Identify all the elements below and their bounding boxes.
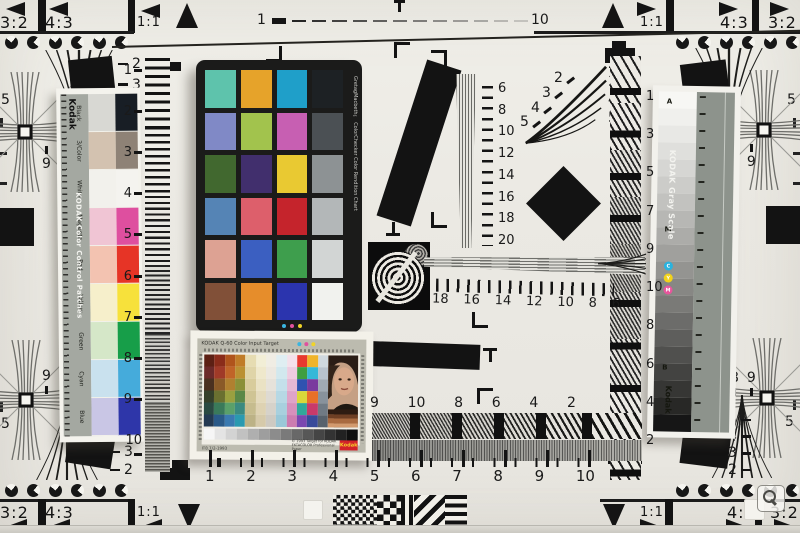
color-patch-muted bbox=[90, 246, 117, 284]
arrow-up-icon bbox=[602, 3, 624, 28]
crop-bracket bbox=[472, 312, 488, 328]
ruler-tick bbox=[546, 450, 549, 467]
wedge-scale-center-vertical: 68101214161820 bbox=[498, 82, 522, 248]
black-bar bbox=[372, 341, 481, 370]
fade-dash bbox=[494, 20, 508, 23]
it8-cell bbox=[235, 367, 245, 379]
checkerboard-fine bbox=[333, 495, 377, 525]
it8-cell bbox=[245, 403, 255, 415]
scale-label: 2 bbox=[122, 105, 142, 119]
white-patch bbox=[303, 500, 323, 520]
patch-label: Black bbox=[69, 94, 87, 132]
portrait-photo bbox=[328, 355, 359, 427]
scale-label: 2 bbox=[246, 467, 256, 485]
fade-dash bbox=[453, 20, 467, 23]
scale-label: 18 bbox=[498, 212, 522, 226]
black-mark bbox=[172, 460, 188, 480]
scale-label: 14 bbox=[494, 293, 511, 308]
ramp-step bbox=[270, 429, 281, 440]
ruler-tick bbox=[335, 450, 338, 467]
strip-title: KODAK Color Control Patches bbox=[70, 192, 88, 362]
target-header: KODAK Q-60 Color Input Target bbox=[201, 340, 279, 347]
scale-label: 10 bbox=[498, 125, 522, 139]
wedge-scale-bottom: 9108642 bbox=[370, 395, 576, 411]
resolution-wedge-left bbox=[145, 58, 170, 472]
it8-cell bbox=[307, 415, 317, 427]
target-mat: KODAK Q-60 Color Input Target bbox=[197, 338, 367, 452]
magnifier-handle bbox=[770, 499, 777, 506]
scale-label: 4 bbox=[531, 100, 540, 116]
it8-cell bbox=[307, 367, 317, 379]
it8-cell bbox=[225, 355, 235, 367]
scale-label: 6 bbox=[411, 467, 421, 485]
scale-label: 10 bbox=[576, 467, 595, 485]
it8-cell bbox=[214, 391, 224, 403]
it8-cell bbox=[224, 415, 234, 427]
colorchecker-patch bbox=[241, 113, 272, 151]
patch-label: Blue bbox=[72, 398, 90, 436]
it8-cell bbox=[297, 415, 307, 427]
ramp-step bbox=[347, 429, 358, 440]
registration-mark bbox=[93, 36, 106, 49]
it8-cell bbox=[245, 379, 255, 391]
it8-cell bbox=[276, 367, 286, 379]
it8-color-grid bbox=[204, 354, 328, 427]
scale-label: 20 bbox=[498, 234, 522, 248]
registration-mark bbox=[49, 484, 62, 497]
ruler-tick bbox=[420, 450, 423, 467]
separator-bar bbox=[752, 0, 759, 33]
fade-dash bbox=[433, 20, 447, 23]
scale-label: 9 bbox=[535, 467, 545, 485]
studio-test-chart-photo: 3:2 4:3 1:1 1:1 4:3 3:2 3:2 4:3 1:1 bbox=[0, 0, 800, 533]
scale-label: 6 bbox=[122, 270, 142, 284]
it8-cell bbox=[245, 367, 255, 379]
it8-cell bbox=[204, 366, 214, 378]
colorchecker-patch bbox=[205, 198, 236, 236]
scale-label: 6 bbox=[492, 395, 501, 411]
colorchecker-patch bbox=[312, 198, 343, 236]
it8-cell bbox=[318, 403, 328, 415]
fade-dash bbox=[292, 20, 306, 23]
scale-label: 9 bbox=[646, 243, 666, 257]
ratio-label: 1:1 bbox=[137, 15, 161, 30]
ruler-tick bbox=[251, 450, 254, 467]
tee-mark bbox=[386, 222, 400, 236]
skin-bar bbox=[328, 423, 358, 428]
color-patch-muted bbox=[89, 208, 116, 246]
colorchecker-grid bbox=[205, 70, 343, 320]
ruler-tick bbox=[462, 450, 465, 467]
resolution-wedge-bottom bbox=[372, 413, 642, 439]
it8-cell bbox=[287, 355, 297, 367]
black-edge-block bbox=[0, 208, 34, 246]
it8-cell bbox=[307, 391, 317, 403]
ratio-label: 4:3 bbox=[720, 13, 749, 32]
separator-bar bbox=[666, 0, 674, 33]
colorchecker-patch bbox=[277, 240, 308, 278]
fade-dash bbox=[312, 20, 326, 23]
colorchecker-patch bbox=[241, 283, 272, 321]
it8-cell bbox=[266, 391, 276, 403]
it8-cell bbox=[204, 390, 214, 402]
edge-line bbox=[0, 31, 134, 34]
zoom-button[interactable] bbox=[757, 485, 785, 512]
scale-start: 1 bbox=[257, 12, 266, 28]
fade-dashes bbox=[272, 18, 528, 24]
colorchecker-patch bbox=[277, 113, 308, 151]
crop-bracket bbox=[431, 212, 447, 228]
ratio-label: 1:1 bbox=[640, 505, 664, 520]
scale-label: 7 bbox=[646, 205, 666, 219]
cyan-dot-icon bbox=[297, 342, 301, 346]
registration-mark bbox=[49, 36, 62, 49]
test-pattern-blocks bbox=[333, 495, 467, 525]
it8-cell bbox=[204, 354, 214, 366]
ramp-step bbox=[237, 429, 248, 440]
colorchecker-patch bbox=[241, 198, 272, 236]
it8-cell bbox=[246, 355, 256, 367]
registration-mark bbox=[93, 484, 106, 497]
scale-label: 9 bbox=[370, 395, 379, 411]
ramp-step bbox=[215, 429, 226, 440]
it8-cell bbox=[287, 403, 297, 415]
scale-label: 3 bbox=[287, 467, 297, 485]
scale-label: 2 bbox=[728, 462, 751, 478]
colorchecker-patch bbox=[277, 198, 308, 236]
edge-line bbox=[0, 499, 134, 502]
ruler-tick bbox=[377, 450, 380, 467]
registration-mark bbox=[786, 36, 799, 49]
it8-cell bbox=[266, 403, 276, 415]
it8-cell bbox=[317, 415, 327, 427]
magenta-dot-icon bbox=[290, 324, 294, 328]
it8-cell bbox=[277, 355, 287, 367]
q60-color-input-target: KODAK Q-60 Color Input Target bbox=[190, 330, 374, 460]
vertical-bars bbox=[401, 495, 414, 525]
ramp-step bbox=[226, 429, 237, 440]
color-patch-muted bbox=[91, 322, 118, 360]
scale-label: 3 bbox=[646, 128, 666, 142]
scale-label: 2 bbox=[554, 70, 563, 86]
ratio-markers-top-left: 3:2 4:3 1:1 bbox=[0, 0, 200, 55]
ratio-markers-top-right: 1:1 4:3 3:2 bbox=[600, 0, 800, 55]
ink-dots bbox=[297, 342, 315, 346]
it8-cell bbox=[276, 379, 286, 391]
it8-cell bbox=[276, 415, 286, 427]
it8-cell bbox=[256, 403, 266, 415]
horizontal-bars bbox=[445, 495, 467, 525]
colorchecker-patch bbox=[312, 240, 343, 278]
registration-mark bbox=[115, 484, 128, 497]
it8-cell bbox=[266, 415, 276, 427]
yellow-dot-icon bbox=[298, 324, 302, 328]
scale-label: 4 bbox=[122, 187, 142, 201]
zone-plate bbox=[368, 242, 430, 310]
ink-dots bbox=[282, 324, 302, 328]
it8-cell bbox=[214, 415, 224, 427]
it8-cell bbox=[204, 378, 214, 390]
it8-cell bbox=[318, 367, 328, 379]
label-band bbox=[691, 92, 735, 433]
scale-label: 7 bbox=[122, 311, 142, 325]
scale-label: 8 bbox=[646, 319, 666, 333]
it8-cell bbox=[318, 379, 328, 391]
magenta-dot-icon bbox=[304, 342, 308, 346]
scale-label: 6 bbox=[498, 82, 522, 96]
it8-cell bbox=[308, 355, 318, 367]
scale-label: 8 bbox=[454, 395, 463, 411]
column-ticks bbox=[204, 348, 354, 352]
scale-label: 1 bbox=[122, 64, 142, 78]
scale-label: 4 bbox=[329, 467, 339, 485]
kodak-logo: Kodak bbox=[340, 440, 358, 450]
fan-scale-center: 2 3 4 5 bbox=[518, 70, 570, 132]
fade-dash bbox=[474, 20, 488, 23]
ratio-label: 1:1 bbox=[137, 505, 161, 520]
it8-cell bbox=[245, 415, 255, 427]
it8-cell bbox=[204, 414, 214, 426]
scale-label: 16 bbox=[463, 292, 480, 307]
bottom-ruler-ticks bbox=[209, 450, 591, 467]
scale-label: 18 bbox=[432, 292, 449, 307]
it8-cell bbox=[266, 367, 276, 379]
registration-mark bbox=[676, 484, 689, 497]
it8-cell bbox=[287, 379, 297, 391]
ruler-tick bbox=[293, 450, 296, 467]
fade-dash bbox=[413, 20, 427, 23]
colorchecker-patch bbox=[277, 155, 308, 193]
scale-label: 2 bbox=[110, 462, 133, 478]
colorchecker-patch bbox=[205, 240, 236, 278]
color-patch-muted bbox=[91, 398, 118, 436]
it8-cell bbox=[297, 367, 307, 379]
diagonal-bars bbox=[414, 495, 445, 525]
wedge-scale-right: 13579108642 bbox=[646, 90, 666, 448]
it8-cell bbox=[225, 379, 235, 391]
marker-a: A bbox=[667, 98, 673, 106]
ratio-label: 3:2 bbox=[0, 13, 29, 32]
registration-mark bbox=[5, 36, 18, 49]
fade-dash bbox=[514, 20, 528, 23]
it8-cell bbox=[276, 391, 286, 403]
scale-label: 8 bbox=[498, 104, 522, 118]
colorchecker-patch bbox=[205, 283, 236, 321]
black-mark bbox=[612, 41, 626, 49]
it8-cell bbox=[286, 415, 296, 427]
center-tick bbox=[398, 3, 401, 12]
scale-label: 5 bbox=[122, 228, 142, 242]
it8-cell bbox=[276, 403, 286, 415]
arrow-right-icon bbox=[637, 2, 656, 16]
separator-bar bbox=[38, 0, 46, 33]
colorchecker-patch bbox=[241, 155, 272, 193]
ramp-step bbox=[281, 429, 292, 440]
it8-cell bbox=[235, 391, 245, 403]
it8-cell bbox=[256, 355, 266, 367]
ratio-label: 1:1 bbox=[640, 15, 664, 30]
registration-mark bbox=[742, 484, 755, 497]
colorchecker-patch bbox=[205, 70, 236, 108]
scale-label: 3 bbox=[728, 445, 751, 461]
it8-cell bbox=[297, 403, 307, 415]
it8-cell bbox=[225, 367, 235, 379]
it8-cell bbox=[245, 391, 255, 403]
color-patch-muted bbox=[90, 284, 117, 322]
scale-label: 10 bbox=[408, 395, 426, 411]
color-patch-muted bbox=[89, 170, 116, 208]
it8-cell bbox=[297, 379, 307, 391]
row-ticks bbox=[361, 356, 364, 444]
colorchecker-patch bbox=[277, 70, 308, 108]
it8-cell bbox=[307, 379, 317, 391]
it8-cell bbox=[318, 391, 328, 403]
yellow-dot-icon bbox=[311, 342, 315, 346]
colorchecker-patch bbox=[277, 283, 308, 321]
fade-dash bbox=[353, 20, 367, 23]
it8-cell bbox=[225, 391, 235, 403]
scale-label: 10 bbox=[122, 434, 142, 462]
checkerboard-coarse bbox=[377, 495, 401, 525]
tick-column bbox=[482, 86, 493, 246]
it8-cell bbox=[214, 379, 224, 391]
scale-label: 8 bbox=[588, 296, 597, 311]
scale-label: 8 bbox=[493, 467, 503, 485]
it8-cell bbox=[297, 391, 307, 403]
scale-label: 10 bbox=[557, 295, 574, 310]
cyan-dot-icon bbox=[282, 324, 286, 328]
it8-cell bbox=[225, 403, 235, 415]
fade-dash bbox=[332, 20, 346, 23]
it8-cell bbox=[215, 355, 225, 367]
black-edge-block bbox=[766, 206, 800, 244]
scale-label: 9 bbox=[122, 393, 142, 407]
it8-cell bbox=[318, 355, 328, 367]
crop-bracket bbox=[431, 50, 447, 66]
scale-label: 14 bbox=[498, 169, 522, 183]
scale-label: 2 bbox=[646, 434, 666, 448]
it8-cell bbox=[256, 391, 266, 403]
it8-cell bbox=[287, 367, 297, 379]
colorchecker-patch bbox=[312, 283, 343, 321]
it8-cell bbox=[214, 403, 224, 415]
ruler-tick bbox=[209, 450, 212, 467]
patch-label: 3/Color bbox=[70, 132, 88, 170]
scale-label: 1 bbox=[646, 90, 666, 104]
it8-cell bbox=[204, 402, 214, 414]
scale-label: 12 bbox=[526, 294, 543, 309]
scale-label: 16 bbox=[498, 191, 522, 205]
it8-cell bbox=[266, 379, 276, 391]
it8-cell bbox=[307, 403, 317, 415]
registration-mark-row bbox=[5, 36, 128, 49]
registration-mark bbox=[5, 484, 18, 497]
it8-cell bbox=[214, 367, 224, 379]
scale-label: 10 bbox=[646, 281, 666, 295]
it8-cell bbox=[235, 403, 245, 415]
patch-column-muted bbox=[88, 94, 119, 436]
it8-cell bbox=[255, 415, 265, 427]
colorchecker-title: GretagMacbeth™ ColorChecker Color Rendit… bbox=[352, 76, 358, 316]
registration-mark bbox=[71, 484, 84, 497]
scale-label: 3 bbox=[542, 85, 551, 101]
colorchecker-patch bbox=[205, 113, 236, 151]
colorchecker-patch bbox=[241, 70, 272, 108]
registration-mark bbox=[27, 36, 40, 49]
registration-mark bbox=[720, 484, 733, 497]
crop-bracket bbox=[394, 42, 410, 58]
scale-label: 3 bbox=[122, 146, 142, 160]
chart-bottom-edge bbox=[0, 525, 800, 533]
fade-dash bbox=[272, 18, 286, 24]
color-patch-muted bbox=[89, 132, 116, 170]
ramp-step bbox=[248, 429, 259, 440]
wedge-flare bbox=[598, 249, 647, 280]
fade-dash bbox=[373, 20, 387, 23]
colorchecker-patch bbox=[241, 240, 272, 278]
registration-mark bbox=[27, 484, 40, 497]
ruler-tick bbox=[588, 450, 591, 467]
separator-bar bbox=[128, 0, 135, 33]
it8-cell bbox=[235, 355, 245, 367]
ramp-step bbox=[204, 428, 215, 439]
colorchecker-patch bbox=[205, 155, 236, 193]
ramp-step bbox=[259, 429, 270, 440]
scale-label: 5 bbox=[370, 467, 380, 485]
registration-mark-row bbox=[5, 484, 128, 497]
it8-cell bbox=[287, 391, 297, 403]
it8-cell bbox=[235, 379, 245, 391]
registration-mark bbox=[698, 484, 711, 497]
black-diamond bbox=[526, 166, 601, 241]
it8-cell bbox=[266, 355, 276, 367]
color-patch-muted bbox=[91, 360, 118, 398]
scale-label: 6 bbox=[611, 296, 620, 311]
scale-label: 7 bbox=[452, 467, 462, 485]
tee-mark bbox=[483, 348, 497, 362]
black-slant-bar bbox=[377, 59, 462, 226]
colorchecker-patch bbox=[312, 113, 343, 151]
resolution-wedge-center-vertical bbox=[456, 74, 476, 248]
registration-mark bbox=[71, 36, 84, 49]
scale-label: 4 bbox=[529, 395, 538, 411]
scale-label: 4 bbox=[646, 396, 666, 410]
bottom-ruler-scale: 12345678910 bbox=[205, 467, 595, 485]
scale-label: 5 bbox=[646, 166, 666, 180]
ratio-label: 4:3 bbox=[45, 13, 74, 32]
scale-label: 2 bbox=[567, 395, 576, 411]
colorchecker-patch bbox=[312, 155, 343, 193]
it8-cell bbox=[297, 355, 307, 367]
scale-end: 10 bbox=[531, 12, 549, 28]
ruler-tick bbox=[504, 450, 507, 467]
it8-cell bbox=[256, 367, 266, 379]
colorchecker-patch bbox=[312, 70, 343, 108]
color-patch-muted bbox=[88, 94, 115, 132]
it8-cell bbox=[256, 379, 266, 391]
scale-label: 12 bbox=[498, 147, 522, 161]
fade-dash bbox=[393, 20, 407, 23]
skin-tone-bars bbox=[328, 409, 358, 427]
patch-label: Cyan bbox=[72, 360, 90, 398]
it8-cell bbox=[235, 415, 245, 427]
registration-mark bbox=[786, 484, 799, 497]
scale-label: 8 bbox=[122, 352, 142, 366]
colorchecker-chart: GretagMacbeth™ ColorChecker Color Rendit… bbox=[196, 60, 362, 332]
scale-label: 6 bbox=[646, 358, 666, 372]
arrow-up-icon bbox=[176, 3, 198, 28]
target-area bbox=[202, 352, 361, 445]
